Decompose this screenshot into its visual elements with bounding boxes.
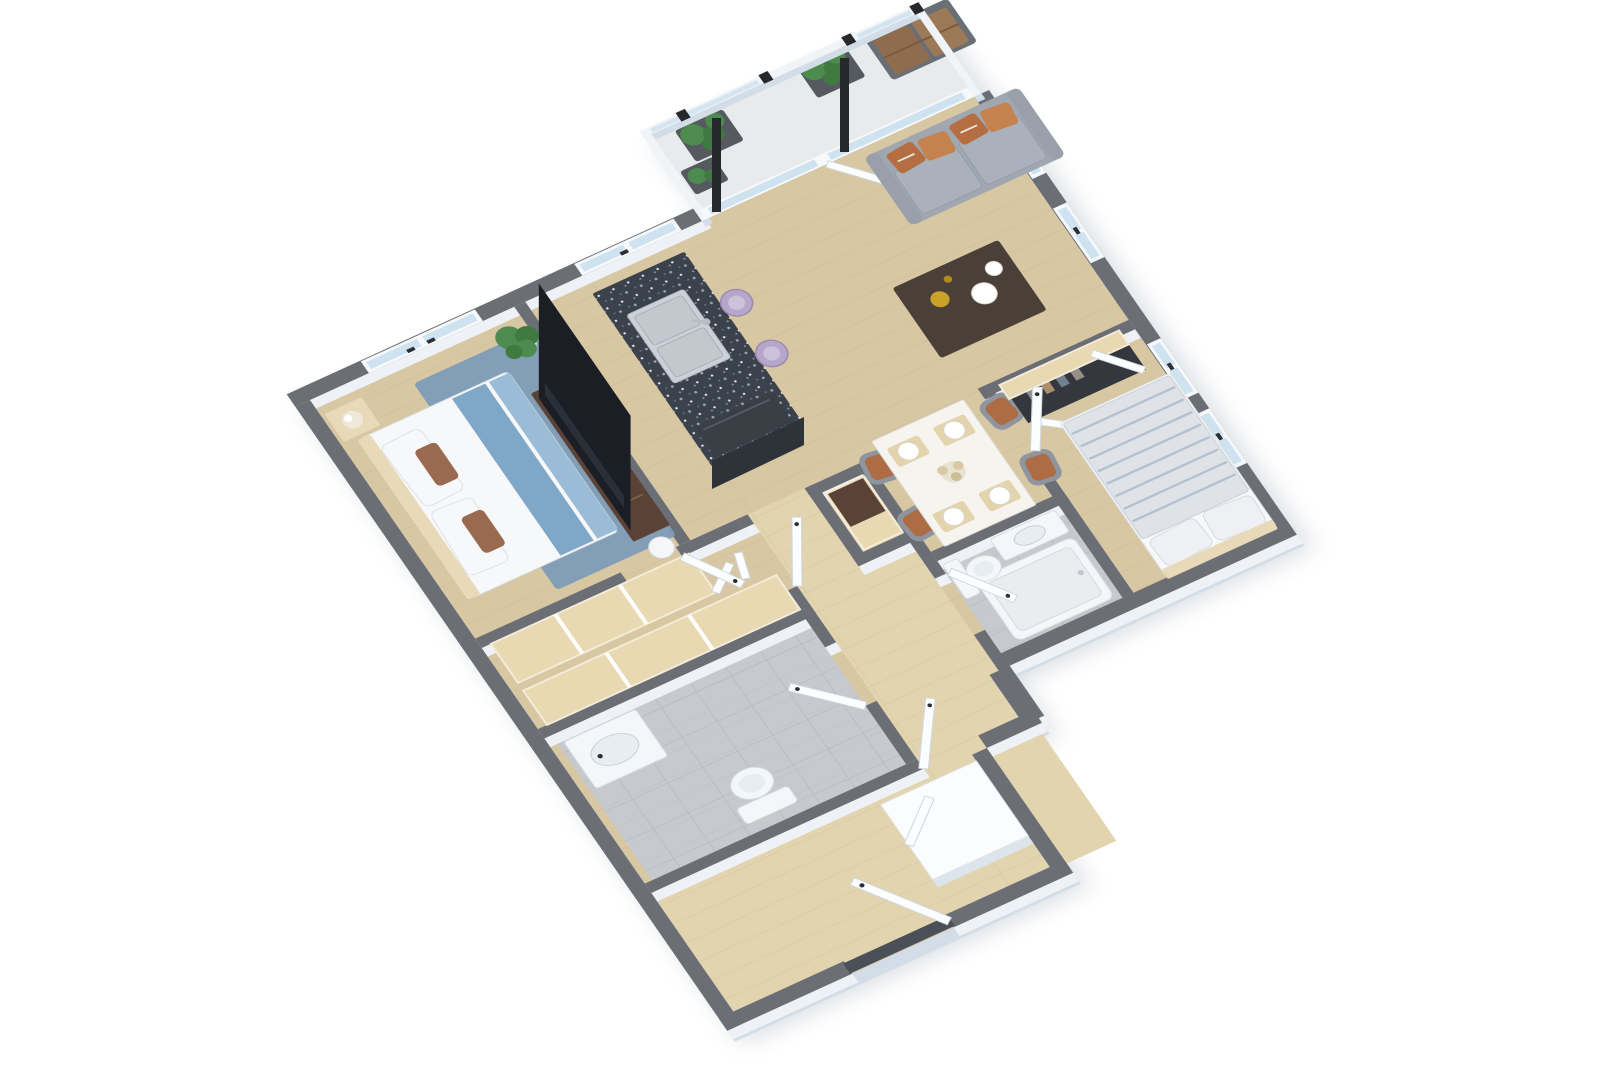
closet-corridor-door-leaf [792, 517, 802, 586]
bedroom2-door-leaf [1030, 387, 1042, 451]
floor-plan-svg [0, 0, 1600, 1068]
plan-projection [232, 0, 1456, 1046]
balcony-post-tall [712, 118, 721, 212]
floor-plan-render [0, 0, 1600, 1068]
balcony-post-tall [840, 58, 849, 152]
